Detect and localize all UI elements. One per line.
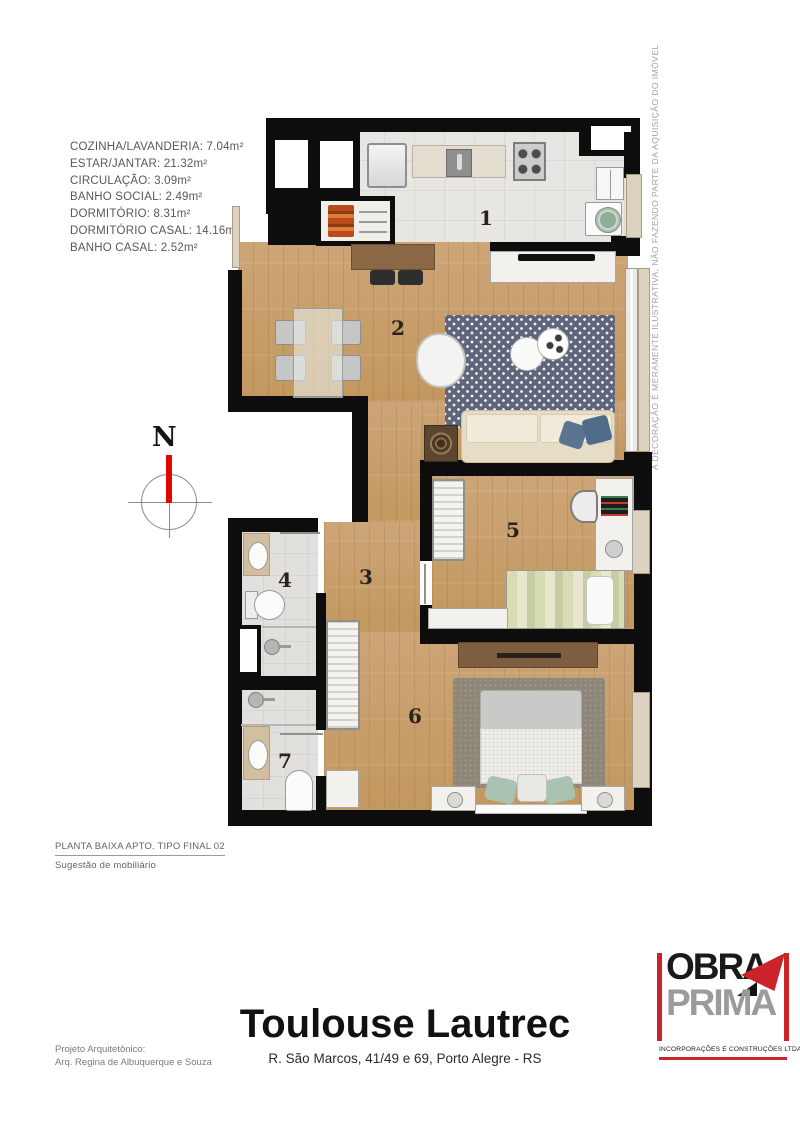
- bath-social-sink: [248, 542, 268, 570]
- faucet-icon: [457, 154, 462, 170]
- shaft-opening: [275, 140, 308, 188]
- laundry-tank: [596, 167, 624, 200]
- tv-icon: [518, 254, 595, 261]
- wall: [268, 188, 316, 245]
- room-number-master: 6: [408, 704, 422, 728]
- legend-line: DORMITÓRIO: 8.31m²: [70, 206, 243, 223]
- bath-social-counter: [243, 533, 270, 576]
- washing-machine: [585, 202, 622, 236]
- wall: [228, 396, 368, 412]
- room-number-bedroom: 5: [506, 518, 520, 542]
- laptop-icon: [601, 496, 628, 516]
- room-area-legend: COZINHA/LAVANDERIA: 7.04m² ESTAR/JANTAR:…: [70, 139, 243, 257]
- north-arrow: N: [128, 426, 212, 538]
- side-table: [424, 425, 458, 462]
- dining-table: [293, 308, 343, 398]
- sofa-cushion: [466, 414, 538, 443]
- window-living-left: [232, 206, 240, 268]
- refrigerator: [367, 143, 407, 188]
- wall: [624, 132, 640, 178]
- compass-needle: [166, 455, 172, 503]
- logo-right-bar: [784, 953, 789, 1041]
- wall: [316, 776, 326, 812]
- north-label: N: [152, 422, 177, 453]
- bath-social-niche: [236, 625, 261, 676]
- window-bedroom: [632, 510, 650, 574]
- wall: [316, 593, 326, 688]
- logo-tagline: INCORPORAÇÕES E CONSTRUÇÕES LTDA: [659, 1046, 791, 1053]
- armchair: [416, 333, 466, 388]
- desk-chair: [570, 490, 598, 523]
- logo-left-bar: [657, 953, 662, 1041]
- grill-icon: [328, 205, 354, 237]
- balcony-door-living: [625, 268, 638, 452]
- dresser-handle: [497, 653, 561, 658]
- wall: [420, 476, 432, 561]
- room-number-hall: 3: [359, 565, 373, 589]
- building-address: R. São Marcos, 41/49 e 69, Porto Alegre …: [155, 1051, 655, 1066]
- lamp-icon: [597, 792, 613, 808]
- floor-hall-upper: [366, 402, 420, 522]
- washer-door-icon: [595, 207, 621, 233]
- legend-line: BANHO SOCIAL: 2.49m²: [70, 189, 243, 206]
- legend-line: BANHO CASAL: 2.52m²: [70, 240, 243, 257]
- building-name: Toulouse Lautrec: [155, 1002, 655, 1047]
- legend-line: COZINHA/LAVANDERIA: 7.04m²: [70, 139, 243, 156]
- coffee-table-small: [537, 328, 569, 360]
- legend-line: CIRCULAÇÃO: 3.09m²: [70, 173, 243, 190]
- master-cabinet: [326, 770, 359, 808]
- logo-underline: [659, 1057, 787, 1060]
- toilet-bowl: [254, 590, 285, 620]
- legend-line: DORMITÓRIO CASAL: 14.16m²: [70, 223, 243, 240]
- bed-pillow: [586, 576, 614, 625]
- bath-social-toilet: [245, 590, 283, 618]
- bedroom-shelf: [428, 608, 508, 629]
- wall: [228, 676, 326, 690]
- window-living-outer: [638, 268, 650, 452]
- wall: [228, 810, 652, 826]
- drawing-title-block: PLANTA BAIXA APTO. TIPO FINAL 02 Sugestã…: [55, 841, 225, 871]
- room-number-bath-social: 4: [278, 568, 292, 592]
- tank-divider: [610, 170, 611, 199]
- bath-master-counter: [243, 726, 270, 780]
- hall-closet: [326, 620, 360, 730]
- bed-pillow-green: [484, 775, 518, 805]
- shaft-opening: [320, 141, 353, 188]
- bed-headboard: [475, 804, 587, 814]
- drawing-subtitle: Sugestão de mobiliário: [55, 860, 225, 871]
- grill-cabinet: [316, 196, 395, 246]
- building-title-block: Toulouse Lautrec R. São Marcos, 41/49 e …: [155, 1002, 655, 1066]
- wall: [228, 270, 242, 412]
- grill-rods: [359, 209, 387, 233]
- bed-blanket: [480, 690, 582, 732]
- wall: [316, 690, 326, 730]
- shower-arm: [262, 698, 275, 701]
- bar-stool: [398, 270, 423, 285]
- door-bedroom: [424, 564, 426, 604]
- door-bath-social: [280, 532, 320, 534]
- single-bed: [506, 570, 625, 629]
- room-number-living: 2: [391, 316, 405, 340]
- bedroom-wardrobe: [432, 479, 465, 561]
- kitchen-sink: [446, 149, 472, 177]
- bar-table: [351, 244, 435, 270]
- obra-prima-logo: OBRA PRIMA INCORPORAÇÕES E CONSTRUÇÕES L…: [653, 938, 793, 1068]
- floor-plan-page: COZINHA/LAVANDERIA: 7.04m² ESTAR/JANTAR:…: [0, 0, 800, 1131]
- lamp-icon: [447, 792, 463, 808]
- room-number-kitchen: 1: [479, 206, 493, 230]
- wall: [352, 396, 368, 522]
- shower-arm: [278, 645, 291, 648]
- stove: [513, 142, 546, 181]
- drawing-title: PLANTA BAIXA APTO. TIPO FINAL 02: [55, 841, 225, 856]
- double-bed: [480, 690, 580, 814]
- window-master-bedroom: [632, 692, 650, 788]
- bath-master-sink: [248, 740, 268, 770]
- dresser: [458, 642, 598, 668]
- shower-glass: [262, 626, 316, 628]
- nightstand: [431, 786, 476, 811]
- legend-line: ESTAR/JANTAR: 21.32m²: [70, 156, 243, 173]
- desk-stool: [605, 540, 623, 558]
- door-bath-master: [280, 733, 323, 735]
- bar-stool: [370, 270, 395, 285]
- logo-word-prima: PRIMA: [666, 982, 775, 1024]
- room-number-bath-master: 7: [278, 749, 292, 773]
- bed-pillow-white: [517, 774, 547, 802]
- apartment-floor-plan: 1 2 3 4 5 6 7: [228, 118, 652, 826]
- nightstand: [581, 786, 625, 811]
- bath-master-toilet: [285, 770, 313, 811]
- window-kitchen: [626, 174, 642, 238]
